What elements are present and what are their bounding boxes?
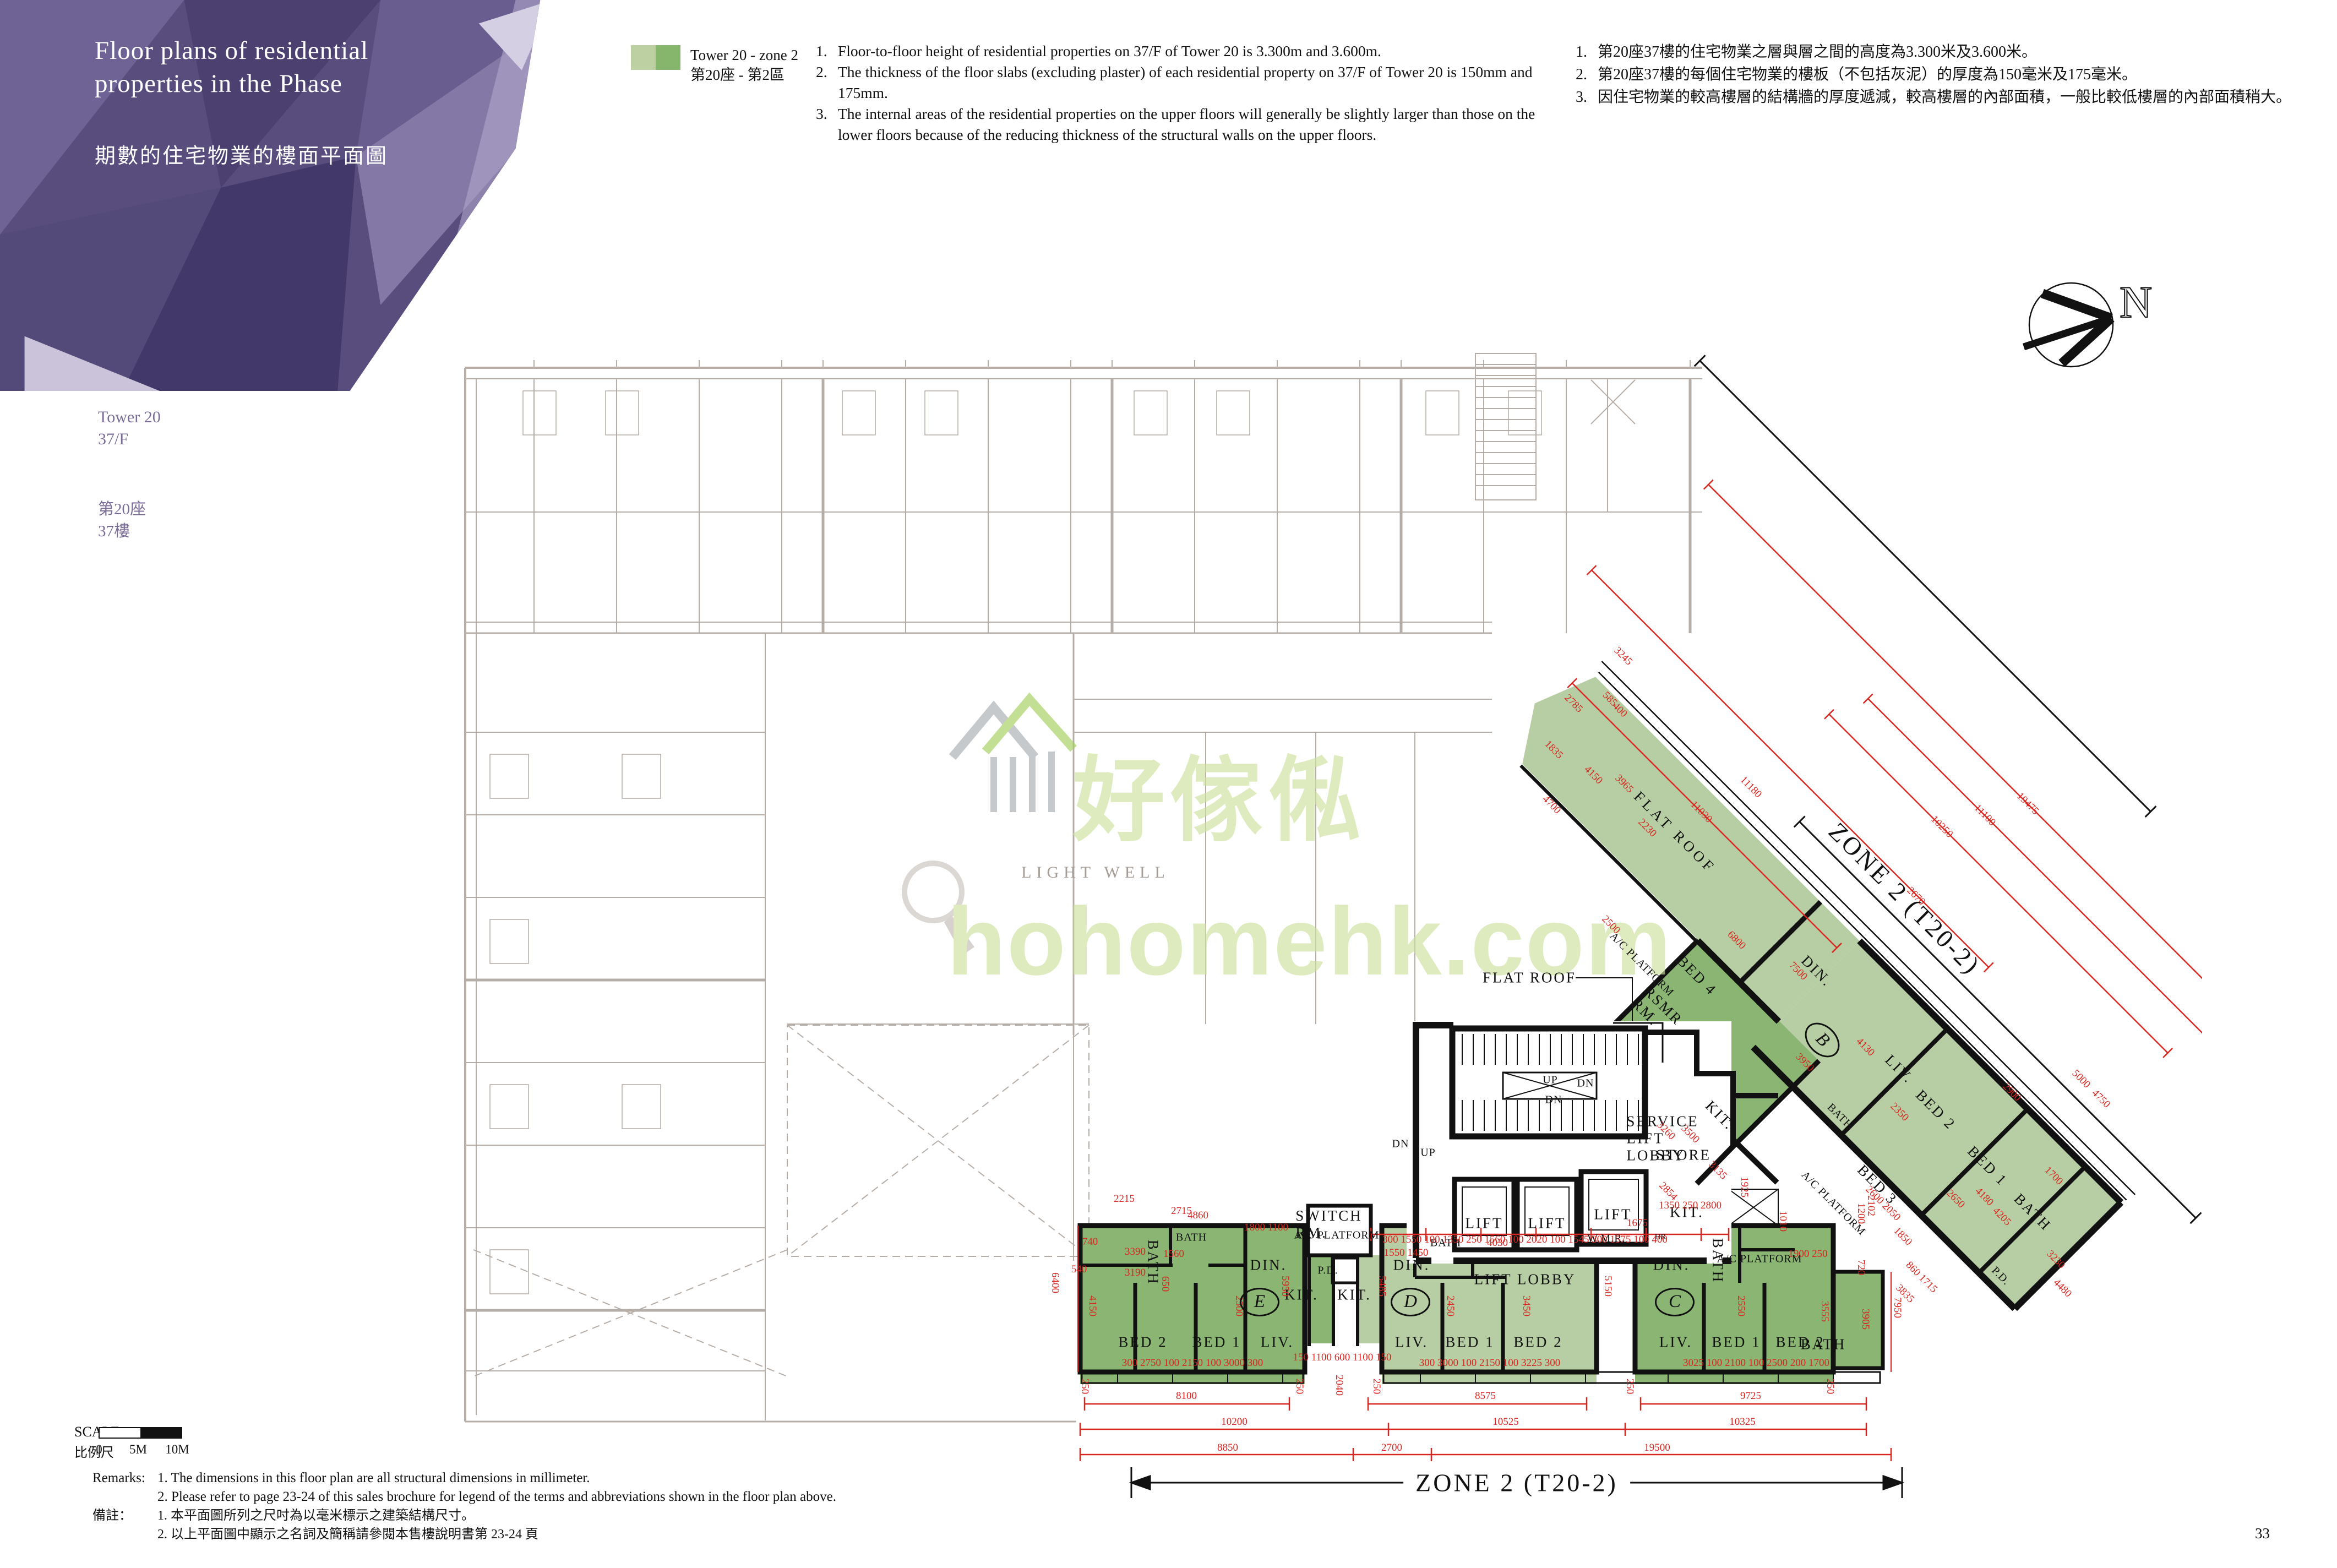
dimension-label: 6400	[1049, 1272, 1061, 1293]
dimension-label: 720	[1855, 1260, 1867, 1276]
dimension-label: 2785	[1562, 692, 1585, 715]
scale-tick-10m: 10M	[165, 1442, 189, 1457]
remark-text: 1. 本平面圖所列之尺吋為以毫米標示之建築結構尺寸。	[157, 1506, 475, 1525]
room-label: LIV.	[1882, 1052, 1917, 1087]
zone-legend: Tower 20 - zone 2 第20座 - 第2區	[631, 45, 798, 85]
dimension-label: 250	[1293, 1379, 1305, 1395]
dimension-label: 1675	[1627, 1217, 1648, 1229]
dimension-label: 8850	[1217, 1442, 1238, 1454]
dimension-label: 5950	[1279, 1276, 1291, 1297]
room-label: LIV.	[1659, 1334, 1692, 1351]
remark-row: 備註：1. 本平面圖所列之尺吋為以毫米標示之建築結構尺寸。	[92, 1506, 1083, 1525]
dimension-label: 1350 250 2800	[1659, 1200, 1722, 1212]
dimension-label: 7950	[1891, 1297, 1903, 1318]
floor-label-zh: 37樓	[98, 520, 146, 542]
tower-label-zh: 第20座	[98, 498, 146, 520]
dimension-label: 1850	[1891, 1225, 1914, 1248]
room-label: DN	[1545, 1094, 1562, 1107]
room-label: LIV.	[1261, 1334, 1294, 1351]
dimension-label: 1925	[1738, 1177, 1750, 1197]
dimension-label: 4750	[2089, 1087, 2112, 1110]
room-label: BED 1	[1964, 1142, 2011, 1189]
room-label: BED 2	[1118, 1334, 1167, 1351]
room-label: UP	[1543, 1074, 1558, 1087]
legend-text: Tower 20 - zone 2 第20座 - 第2區	[690, 45, 798, 85]
dimension-label: 3190	[1125, 1267, 1146, 1279]
dimension-label: 10200	[1221, 1416, 1248, 1428]
room-label: BED 4	[1673, 952, 1720, 999]
dimension-label: 3450	[1520, 1295, 1532, 1316]
floor-label: 37/F	[98, 428, 161, 450]
page-title-line2: properties in the Phase	[95, 67, 513, 100]
dimension-label: 3025 100 2100 100 2500 200 1700	[1683, 1357, 1829, 1369]
dimension-label: 540	[1071, 1264, 1087, 1276]
dimension-label: 150 1100 600 1100 150	[1293, 1352, 1391, 1364]
room-label: DN	[1392, 1138, 1409, 1151]
remark-row: 2. 以上平面圖中顯示之名詞及簡稱請參閱本售樓說明書第 23-24 頁	[92, 1525, 1083, 1544]
dimension-label: 2215	[1114, 1193, 1135, 1205]
page-number: 33	[2255, 1525, 2270, 1542]
notes-english: 1.Floor-to-floor height of residential p…	[816, 41, 1548, 145]
dimension-label: 3905	[1859, 1309, 1871, 1330]
room-label: P.D.	[1317, 1265, 1338, 1277]
room-label: DIN.	[1393, 1257, 1430, 1274]
room-label: STORE	[1656, 1147, 1711, 1164]
notes-chinese: 1.第20座37樓的住宅物業之層與層之間的高度為3.300米及3.600米。 2…	[1576, 41, 2324, 108]
dimension-label: 4700	[1540, 793, 1563, 816]
room-label: BATH	[1709, 1238, 1726, 1284]
room-label: BATH	[2011, 1190, 2055, 1234]
dimension-label: 10525	[1492, 1416, 1519, 1428]
dimension-label: 3950	[1793, 1051, 1816, 1074]
zone-label-bottom: ZONE 2 (T20-2)	[1403, 1468, 1630, 1498]
room-label: KIT.	[1337, 1287, 1371, 1304]
unit-badge-D: D	[1391, 1288, 1430, 1316]
dimension-label: 300 3000 100 2150 100 3225 300	[1419, 1357, 1561, 1369]
dimension-label: 2040	[1333, 1375, 1345, 1396]
dimension-label: 5150	[1601, 1276, 1614, 1297]
dimension-label: 250	[1824, 1379, 1836, 1395]
dimension-label: 1550 1450	[1384, 1247, 1429, 1259]
room-label: BATH	[1824, 1101, 1855, 1132]
room-label: RSMR RM.	[1628, 983, 1686, 1041]
unit-badge-C: C	[1655, 1288, 1695, 1316]
remark-row: Remarks:1. The dimensions in this floor …	[92, 1469, 1083, 1488]
dimension-label: 1900 250	[1788, 1248, 1827, 1260]
note-item: 3.The internal areas of the residential …	[816, 104, 1548, 145]
room-label: UP	[1420, 1147, 1436, 1159]
legend-swatch-light	[631, 45, 656, 70]
dimension-label: 11100	[1971, 802, 1998, 829]
tower-floor-label: Tower 20 37/F	[98, 406, 161, 450]
dimension-label: 250	[1078, 1379, 1091, 1395]
dimension-label: 2650	[1944, 1188, 1967, 1211]
note-item: 2.第20座37樓的每個住宅物業的樓板（不包括灰泥）的厚度為150毫米及175毫…	[1576, 63, 2324, 86]
room-label: LIV.	[1395, 1334, 1428, 1351]
dimension-label: 10250	[1928, 813, 1955, 840]
legend-label-en: Tower 20 - zone 2	[690, 45, 798, 65]
dimension-label: 2450	[1444, 1295, 1456, 1316]
dimension-label: 3230	[2044, 1248, 2067, 1271]
dimension-label: 4180	[1973, 1185, 1996, 1208]
tower-floor-label-chinese: 第20座 37樓	[98, 498, 146, 542]
dimension-label: 4130	[1854, 1036, 1877, 1059]
scale-tick-5m: 5M	[129, 1442, 147, 1457]
note-item: 1.Floor-to-floor height of residential p…	[816, 41, 1548, 62]
dimension-label: 6800	[1725, 929, 1748, 952]
page-title-chinese: 期數的住宅物業的樓面平面圖	[95, 139, 388, 169]
room-label: BED 1	[1712, 1334, 1761, 1351]
dimension-label: 1800 1100	[1244, 1222, 1288, 1234]
dimension-label: 4030	[1487, 1237, 1508, 1249]
remarks: Remarks:1. The dimensions in this floor …	[92, 1469, 1083, 1544]
dimension-label: 250	[1370, 1379, 1382, 1395]
room-label: LIFT	[1466, 1215, 1503, 1232]
scale-tick-0: 0	[96, 1442, 102, 1457]
note-item: 1.第20座37樓的住宅物業之層與層之間的高度為3.300米及3.600米。	[1576, 41, 2324, 63]
room-label: DN	[1577, 1077, 1594, 1090]
legend-label-zh: 第20座 - 第2區	[690, 65, 798, 85]
dimension-label: 1200	[1855, 1203, 1867, 1224]
room-label: P.D.	[1989, 1265, 2013, 1288]
page-title: Floor plans of residential properties in…	[95, 34, 513, 100]
dimension-label: 1835	[1542, 738, 1565, 761]
remark-text: 1. The dimensions in this floor plan are…	[157, 1469, 590, 1488]
dimension-label: 4150	[1086, 1295, 1098, 1316]
room-label: BED 1	[1445, 1334, 1494, 1351]
scale-label-zh: 比例尺	[74, 1441, 114, 1461]
dimension-label: 4150	[1582, 764, 1605, 787]
room-label: SWITCH RM.	[1295, 1207, 1363, 1242]
dimension-label: 4480	[2051, 1277, 2074, 1300]
dimension-label: 8575	[1475, 1390, 1496, 1402]
room-label: BATH	[1176, 1232, 1207, 1244]
dimension-label: 3245	[1611, 645, 1635, 668]
dimension-label: 2900	[2000, 1081, 2023, 1104]
dimension-label: 8100	[1176, 1390, 1197, 1402]
floor-plan: 好傢俬 hohomehk.com LIGHT WELLFLAT ROOFSERV…	[457, 347, 2202, 1503]
dimension-label: 1010	[1777, 1211, 1789, 1232]
dimension-label: 19500	[1644, 1442, 1670, 1454]
dimension-label: 2715	[1171, 1205, 1192, 1217]
dimension-label: 3390	[1125, 1246, 1146, 1258]
dimension-label: 3555	[1818, 1301, 1831, 1322]
dimension-label: 4205	[1990, 1205, 2013, 1228]
room-label: KIT.	[1702, 1097, 1738, 1134]
tower-label: Tower 20	[98, 406, 161, 428]
north-letter: N	[2120, 277, 2152, 327]
dimension-label: 11030	[1688, 799, 1715, 826]
dimension-label: 300 2750 100 2150 100 3000 300	[1122, 1357, 1263, 1369]
dimension-label: 9725	[1740, 1390, 1761, 1402]
room-label: BED 2	[1912, 1086, 1959, 1133]
dimension-label: 5485	[1376, 1276, 1388, 1297]
dimension-label: 2350	[1888, 1101, 1911, 1124]
room-label: LIFT LOBBY	[1474, 1271, 1576, 1288]
dimension-label: 1560	[1163, 1248, 1184, 1260]
dimension-label: 300 1550 100 1350 250 1560 100 2020 100 …	[1382, 1234, 1668, 1246]
room-label: LIGHT WELL	[1021, 863, 1170, 882]
dimension-label: 2550	[1735, 1295, 1747, 1316]
dimension-label: 10325	[1729, 1416, 1756, 1428]
room-label: LIFT	[1528, 1215, 1566, 1232]
remarks-label-en: Remarks:	[92, 1469, 157, 1488]
dimension-label: 11180	[1737, 774, 1764, 801]
dimension-label: 650	[1159, 1276, 1171, 1292]
note-item: 3.因住宅物業的較高樓層的結構牆的厚度遞減，較高樓層的內部面積，一般比較低樓層的…	[1576, 86, 2324, 108]
scale-bar-graphic	[99, 1427, 182, 1439]
note-item: 2.The thickness of the floor slabs (excl…	[816, 62, 1548, 104]
remark-text: 2. Please refer to page 23-24 of this sa…	[157, 1488, 836, 1506]
legend-swatch-dark	[656, 45, 680, 70]
room-label: BED 2	[1513, 1334, 1562, 1351]
dimension-label: 5000	[2069, 1068, 2093, 1091]
zone-label-diagonal: ZONE 2 (T20-2)	[1823, 816, 1986, 980]
dimension-label: 740	[1082, 1236, 1098, 1248]
room-label: BATH	[1801, 1336, 1846, 1353]
remark-text: 2. 以上平面圖中顯示之名詞及簡稱請參閱本售樓說明書第 23-24 頁	[157, 1525, 538, 1544]
remarks-label-zh: 備註：	[92, 1506, 157, 1525]
dimension-label: 19475	[2014, 790, 2041, 817]
room-label: A/C PLATFORM	[1607, 930, 1676, 999]
page-title-line1: Floor plans of residential	[95, 34, 513, 67]
room-label: FLAT ROOF	[1483, 970, 1576, 987]
remark-row: 2. Please refer to page 23-24 of this sa…	[92, 1488, 1083, 1506]
dimension-label: 2700	[1381, 1442, 1402, 1454]
plan-label-layer: LIGHT WELLFLAT ROOFSERVICE LIFT LOBBYLIF…	[457, 347, 2202, 1503]
unit-badge-E: E	[1240, 1288, 1279, 1316]
room-label: DIN.	[1250, 1257, 1287, 1274]
room-label: BED 1	[1192, 1334, 1241, 1351]
room-label: DIN.	[1653, 1257, 1690, 1274]
dimension-label: 3965	[1613, 772, 1636, 796]
dimension-label: 250	[1624, 1379, 1636, 1395]
brochure-page: { "header": { "title_en_1": "Floor plans…	[0, 0, 2337, 1568]
dimension-label: 1700	[2042, 1164, 2065, 1188]
